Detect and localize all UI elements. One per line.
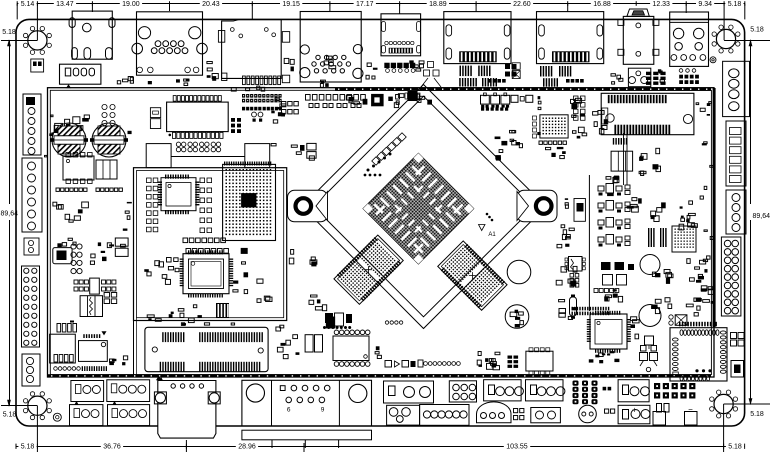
svg-text:5.18: 5.18 xyxy=(3,412,17,419)
svg-text:28.96: 28.96 xyxy=(238,444,256,451)
svg-text:5.14: 5.14 xyxy=(21,1,35,8)
svg-text:5.18: 5.18 xyxy=(2,29,16,36)
svg-text:9: 9 xyxy=(321,407,325,414)
svg-text:17.17: 17.17 xyxy=(356,1,374,8)
svg-text:+: + xyxy=(632,406,637,415)
svg-text:5.18: 5.18 xyxy=(750,27,764,34)
svg-text:36.76: 36.76 xyxy=(103,444,121,451)
svg-text:5.18: 5.18 xyxy=(21,444,35,451)
svg-text:5.18: 5.18 xyxy=(750,411,764,418)
svg-text:20.43: 20.43 xyxy=(202,1,220,8)
svg-text:13.47: 13.47 xyxy=(56,1,74,8)
svg-text:18.89: 18.89 xyxy=(429,1,447,8)
svg-text:12.33: 12.33 xyxy=(652,1,670,8)
svg-text:5.18: 5.18 xyxy=(728,444,742,451)
svg-text:19.00: 19.00 xyxy=(122,1,140,8)
svg-text:−: − xyxy=(688,405,693,414)
svg-text:5.18: 5.18 xyxy=(728,1,742,8)
svg-text:A1: A1 xyxy=(488,232,496,238)
svg-text:16.88: 16.88 xyxy=(593,1,611,8)
svg-text:19.15: 19.15 xyxy=(282,1,300,8)
svg-text:89,64: 89,64 xyxy=(753,213,771,220)
svg-text:6: 6 xyxy=(287,407,291,414)
svg-text:22.60: 22.60 xyxy=(513,1,531,8)
svg-text:9.34: 9.34 xyxy=(698,1,712,8)
svg-text:103.55: 103.55 xyxy=(506,444,528,451)
